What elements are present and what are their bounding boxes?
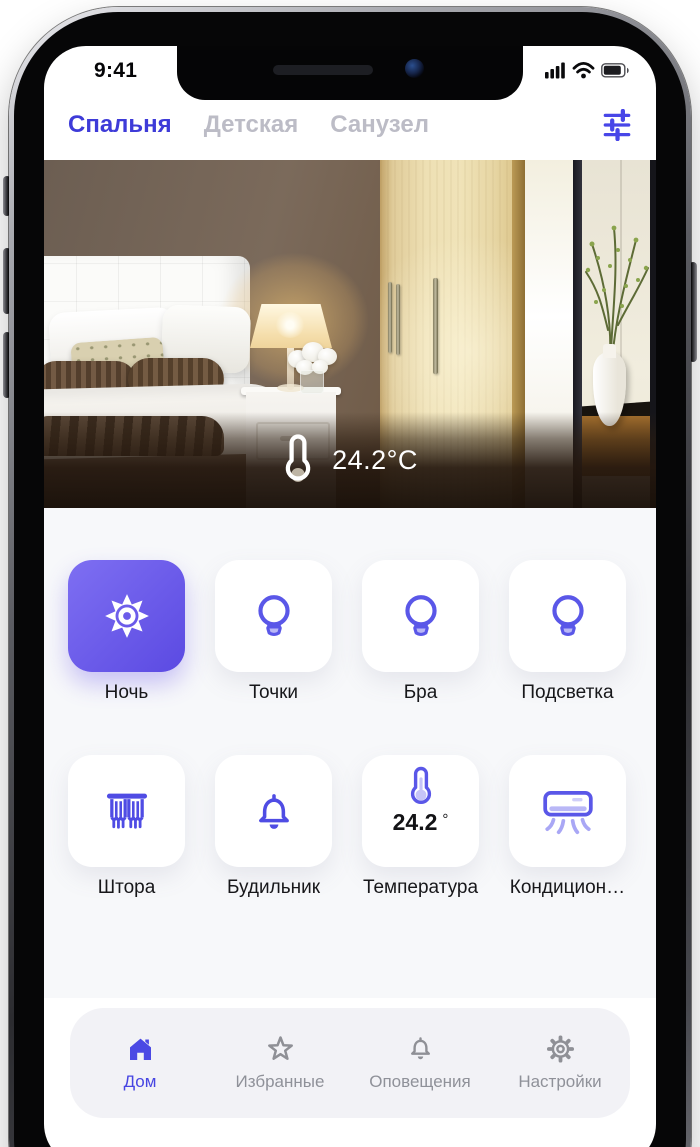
speaker-grille [273, 65, 373, 75]
device-tile-night[interactable]: Ночь [68, 560, 185, 705]
alarm-bell-icon [249, 786, 299, 836]
device-tile-alarm[interactable]: Будильник [215, 755, 332, 900]
gear-icon [545, 1034, 576, 1064]
status-time: 9:41 [94, 59, 137, 83]
phone-mockup: 9:41 [0, 0, 700, 1147]
thermometer-icon [401, 765, 441, 807]
photo-branches [578, 210, 656, 360]
temperature-overlay: 24.2°C [44, 412, 656, 508]
bulb-icon [396, 591, 446, 641]
device-tile-ac[interactable]: Кондицион… [509, 755, 626, 900]
device-tile-curtain[interactable]: Штора [68, 755, 185, 900]
nav-item-settings[interactable]: Настройки [490, 1008, 630, 1118]
bulb-icon [249, 591, 299, 641]
wifi-icon [572, 62, 595, 79]
cellular-signal-icon [545, 62, 566, 79]
bottom-nav: Дом Избранные Оповещения [70, 1008, 630, 1118]
filter-button[interactable] [600, 108, 634, 142]
star-icon [265, 1034, 296, 1064]
device-tile-backlight[interactable]: Подсветка [509, 560, 626, 705]
bulb-icon [543, 591, 593, 641]
air-conditioner-icon [540, 787, 596, 835]
device-tile-spots[interactable]: Точки [215, 560, 332, 705]
notch [177, 46, 523, 100]
home-icon [125, 1034, 156, 1064]
room-photo: 24.2°C [44, 160, 656, 508]
bell-icon [405, 1034, 436, 1064]
temperature-value: 24.2° [393, 809, 449, 836]
device-tile-temperature[interactable]: 24.2° Температура [362, 755, 479, 900]
device-grid: Ночь Точки [68, 560, 632, 900]
device-tile-sconce[interactable]: Бра [362, 560, 479, 705]
sliders-icon [601, 109, 633, 141]
nav-item-notifications[interactable]: Оповещения [350, 1008, 490, 1118]
front-camera [405, 59, 424, 78]
nav-item-favorites[interactable]: Избранные [210, 1008, 350, 1118]
sun-icon [102, 591, 152, 641]
curtain-icon [101, 785, 153, 837]
tab-bedroom[interactable]: Спальня [68, 111, 172, 139]
tab-kidsroom[interactable]: Детская [204, 111, 299, 139]
battery-icon [601, 63, 630, 78]
room-tab-bar: Спальня Детская Санузел [68, 111, 429, 139]
thermometer-icon [282, 432, 314, 488]
room-temperature: 24.2°C [332, 445, 418, 476]
app-screen: 9:41 [44, 46, 656, 1147]
nav-item-home[interactable]: Дом [70, 1008, 210, 1118]
tab-bathroom[interactable]: Санузел [330, 111, 429, 139]
